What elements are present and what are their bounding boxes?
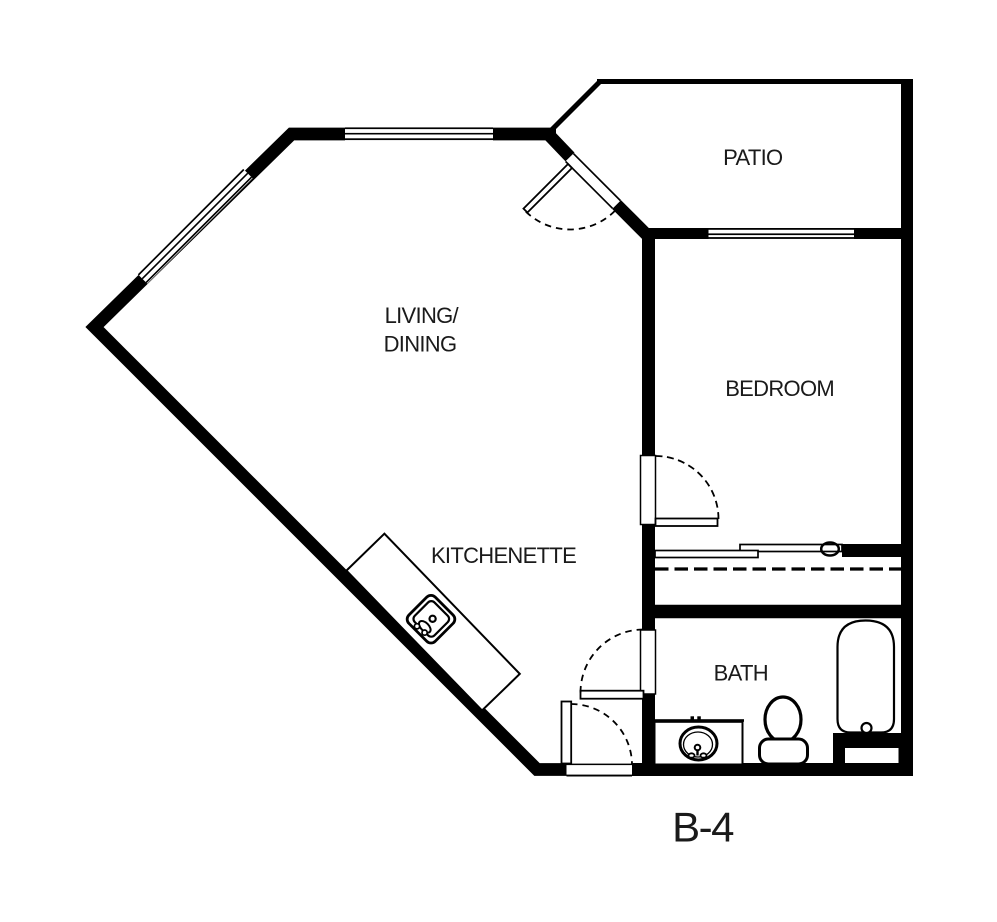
svg-text:LIVING/: LIVING/ [385,303,460,328]
svg-text:BEDROOM: BEDROOM [725,376,834,401]
svg-text:DINING: DINING [384,332,457,357]
svg-text:PATIO: PATIO [723,145,783,170]
svg-text:KITCHENETTE: KITCHENETTE [431,543,576,568]
svg-text:BATH: BATH [714,661,768,686]
svg-text:B-4: B-4 [672,804,734,851]
